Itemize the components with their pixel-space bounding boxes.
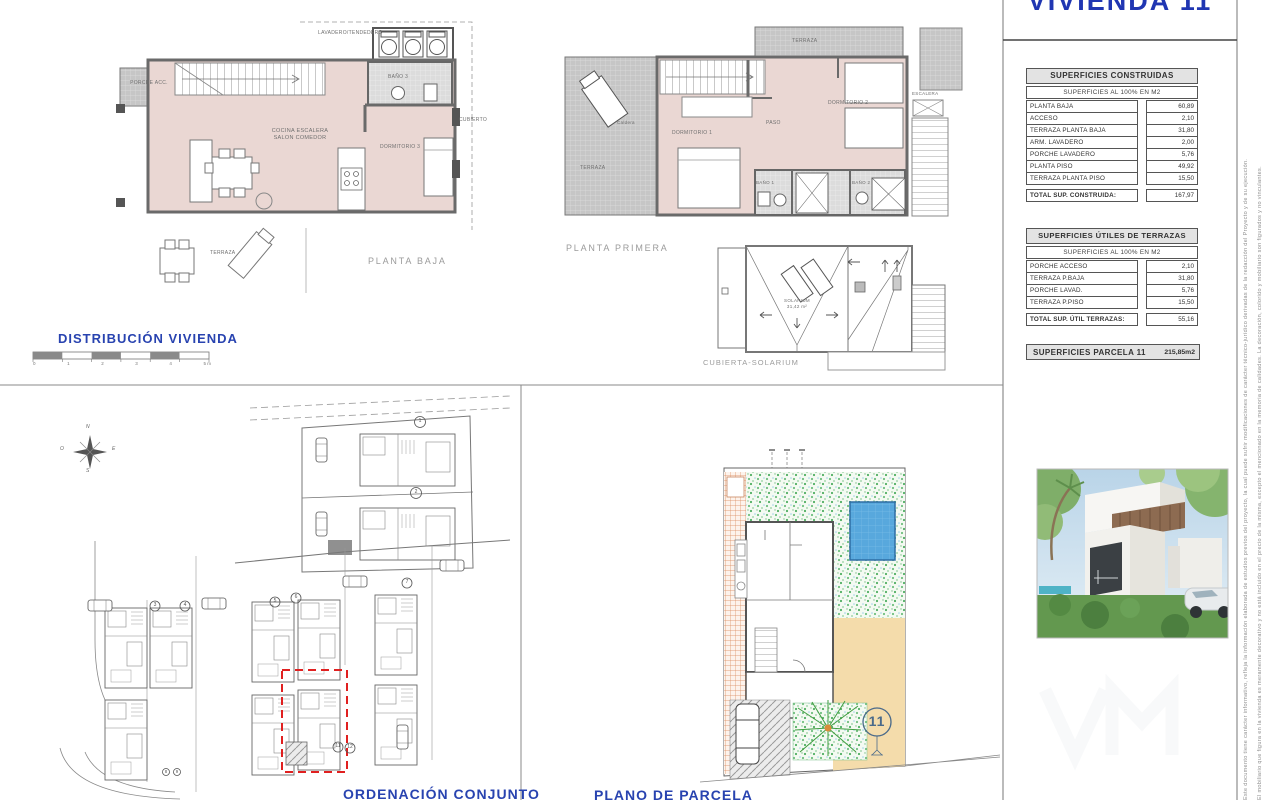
parcela-value: 215,85m2: [1164, 349, 1199, 356]
table-title: SUPERFICIES CONSTRUIDAS: [1026, 68, 1198, 84]
scale-tick-labels: 0 1 2 3 4 5 m: [33, 361, 211, 366]
total-label: TOTAL SUP. ÚTIL TERRAZAS:: [1026, 313, 1138, 326]
row-value: 15,50: [1146, 172, 1198, 185]
parcela-plot-number: 11: [863, 713, 891, 729]
compass-o: O: [60, 446, 64, 452]
plano-parcela-plan: [700, 450, 1000, 782]
caption-ordenacion-conjunto: ORDENACIÓN CONJUNTO: [343, 786, 540, 800]
compass-s: S: [86, 468, 89, 474]
table-total-row: TOTAL SUP. ÚTIL TERRAZAS:55,16: [1026, 313, 1198, 326]
bano3-floor: [368, 62, 452, 105]
bed-dormitorio2-a: [845, 63, 903, 103]
room-label-porche-acc: PORCHE ACC.: [121, 80, 177, 87]
caption-planta-primera: PLANTA PRIMERA: [566, 243, 669, 253]
lavadero-area: [373, 28, 453, 61]
room-label-caldera: Caldera: [617, 120, 635, 126]
scale-tick: 5 m: [203, 361, 211, 366]
plot-number-11: 11: [332, 743, 344, 749]
plot-number-1: 1: [414, 418, 426, 424]
wc-icon: [774, 194, 786, 206]
caption-cubierta-solarium: CUBIERTA-SOLARIUM: [703, 358, 799, 367]
disclaimer-line-2: El mobiliario que figura en la vivienda …: [1257, 5, 1268, 800]
label-solarium: SOLARIUM 31,42 m²: [775, 298, 819, 310]
room-label-dormitorio2: DORMITORIO 2: [828, 100, 868, 107]
room-label-dormitorio1: DORMITORIO 1: [672, 130, 712, 137]
planta-baja-plan: [116, 22, 472, 282]
bed-dormitorio3: [424, 138, 453, 196]
label-distribucion-vivienda: DISTRIBUCIÓN VIVIENDA: [58, 331, 238, 346]
compass-icon: [73, 435, 107, 469]
wc-icon-2: [856, 192, 868, 204]
bath-icon: [872, 178, 905, 210]
row-value: 15,50: [1146, 296, 1198, 309]
render-image: [1027, 448, 1245, 642]
ordenacion-conjunto-plan: [60, 396, 510, 799]
table-subtitle: SUPERFICIES AL 100% EN M2: [1026, 86, 1198, 99]
room-label-cocina-salon: COCINA ESCALERA SALON COMEDOR: [245, 128, 355, 142]
table-row: TERRAZA P.PISO15,50: [1026, 296, 1198, 309]
plot-number-7: 7: [401, 579, 413, 585]
page-title: VIVIENDA 11: [1003, 0, 1237, 17]
shower-icon: [424, 84, 437, 101]
plot-number-5: 5: [269, 598, 281, 604]
terraza-top-area: [755, 27, 903, 59]
kitchen-counter: [338, 148, 365, 210]
room-label-terraza-pb: TERRAZA: [210, 250, 235, 257]
parked-car: [736, 704, 759, 764]
caption-planta-baja: PLANTA BAJA: [368, 256, 447, 266]
bed-dormitorio1: [678, 148, 740, 208]
scale-tick: 0: [33, 361, 36, 366]
scale-tick: 2: [101, 361, 104, 366]
bed-dormitorio2-b: [845, 108, 903, 148]
shower-icon: [796, 173, 828, 213]
table-total-row: TOTAL SUP. CONSTRUIDA:167,97: [1026, 189, 1198, 202]
row-label: TERRAZA PLANTA PISO: [1026, 172, 1138, 185]
wc-icon: [392, 87, 405, 100]
plot-number-4: 4: [179, 602, 191, 608]
escalera-exterior: [912, 28, 962, 216]
plot-number-2: 2: [410, 489, 422, 495]
plot-number-9: 9: [171, 769, 183, 774]
table-superficies-terrazas: SUPERFICIES ÚTILES DE TERRAZAS SUPERFICI…: [1026, 228, 1198, 326]
caption-plano-parcela: PLANO DE PARCELA: [594, 787, 753, 800]
row-label: TERRAZA P.PISO: [1026, 296, 1138, 309]
closet-dormitorio1: [682, 97, 752, 117]
plot-number-12: 12: [344, 744, 356, 750]
plot-number-3: 3: [149, 602, 161, 608]
table-subtitle: SUPERFICIES AL 100% EN M2: [1026, 246, 1198, 259]
plan-sheet: VIVIENDA 11 LAVADERO/TENDEDERO PORCHE AC…: [0, 0, 1280, 800]
total-value: 167,97: [1146, 189, 1198, 202]
room-label-terraza-left: TERRAZA: [580, 165, 605, 172]
room-label-bano1: BAÑO 1: [756, 180, 774, 186]
room-label-bano2: BAÑO 2: [852, 180, 870, 186]
room-label-lavadero: LAVADERO/TENDEDERO: [318, 30, 383, 37]
room-label-paso: PASO: [766, 120, 781, 127]
total-value: 55,16: [1146, 313, 1198, 326]
superficies-parcela-bar: SUPERFICIES PARCELA 11 215,85m2: [1026, 344, 1200, 360]
plot11-hatch: [286, 742, 307, 765]
table-row: TERRAZA PLANTA PISO15,50: [1026, 172, 1198, 185]
parcela-label: SUPERFICIES PARCELA 11: [1027, 348, 1146, 357]
watermark: [1045, 690, 1172, 755]
scale-tick: 4: [169, 361, 172, 366]
table-superficies-construidas: SUPERFICIES CONSTRUIDAS SUPERFICIES AL 1…: [1026, 68, 1198, 202]
scale-tick: 1: [67, 361, 70, 366]
terraza-left-area: [565, 57, 657, 215]
table-title: SUPERFICIES ÚTILES DE TERRAZAS: [1026, 228, 1198, 244]
plot-number-6: 6: [290, 594, 302, 600]
house-stairs: [755, 628, 777, 672]
room-label-bano3: BAÑO 3: [388, 74, 408, 81]
room-label-cubierto: CUBIERTO: [459, 117, 487, 124]
cubierta-solarium-plan: [718, 246, 945, 370]
scale-tick: 3: [135, 361, 138, 366]
pool: [850, 502, 895, 560]
compass-n: N: [86, 424, 90, 430]
terrace-units: [735, 540, 747, 598]
total-label: TOTAL SUP. CONSTRUIDA:: [1026, 189, 1138, 202]
room-label-escalera: ESCALERA: [912, 91, 938, 97]
room-label-dormitorio3: DORMITORIO 3: [380, 144, 420, 151]
room-label-terraza-top: TERRAZA: [792, 38, 817, 45]
compass-e: E: [112, 446, 115, 452]
sink-icon: [758, 192, 770, 206]
wash-square: [727, 477, 744, 497]
disclaimer-line-1: Este documento tiene carácter informativ…: [1243, 5, 1254, 800]
